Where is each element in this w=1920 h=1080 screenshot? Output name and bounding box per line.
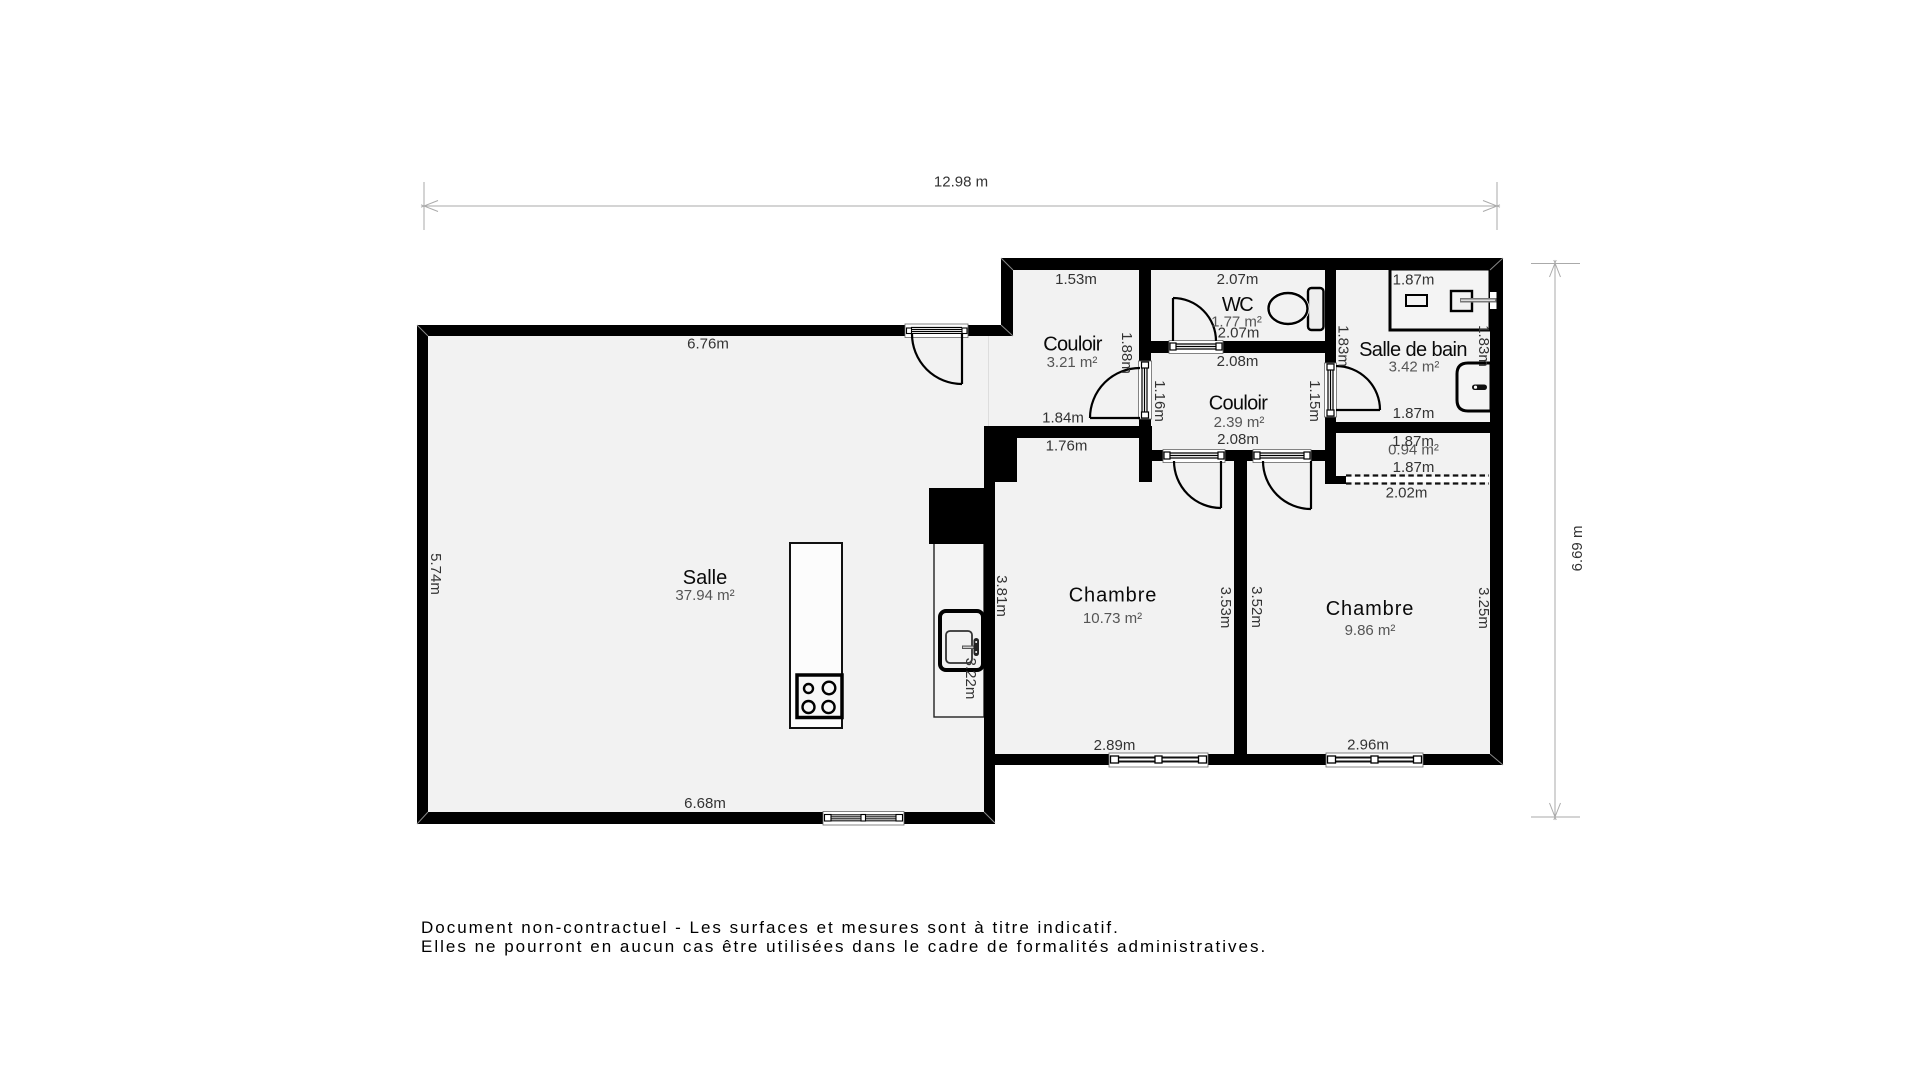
svg-text:3.25m: 3.25m — [1475, 587, 1492, 629]
svg-text:Chambre: Chambre — [1069, 585, 1158, 607]
svg-text:9.86 m²: 9.86 m² — [1345, 622, 1396, 639]
svg-text:3.53m: 3.53m — [1217, 587, 1234, 629]
svg-text:1.87m: 1.87m — [1392, 433, 1434, 450]
svg-text:2.02m: 2.02m — [1386, 485, 1428, 502]
svg-text:2.08m: 2.08m — [1217, 431, 1259, 448]
svg-text:Salle: Salle — [683, 567, 727, 589]
svg-text:2.39 m²: 2.39 m² — [1214, 414, 1265, 431]
svg-text:3.22m: 3.22m — [962, 658, 979, 700]
svg-text:2.07m: 2.07m — [1217, 271, 1259, 288]
svg-text:3.52m: 3.52m — [1248, 586, 1265, 628]
svg-text:1.76m: 1.76m — [1046, 438, 1088, 455]
svg-text:1.87m: 1.87m — [1393, 272, 1435, 289]
svg-text:Elles ne pourront en aucun cas: Elles ne pourront en aucun cas être util… — [421, 937, 1267, 956]
svg-text:6.69 m: 6.69 m — [1569, 526, 1586, 572]
svg-text:1.15m: 1.15m — [1306, 380, 1323, 422]
svg-text:1.84m: 1.84m — [1042, 410, 1084, 427]
svg-text:Chambre: Chambre — [1326, 598, 1415, 620]
svg-text:3.21 m²: 3.21 m² — [1047, 354, 1098, 371]
svg-text:2.96m: 2.96m — [1347, 737, 1389, 754]
svg-text:3.81m: 3.81m — [993, 575, 1010, 617]
svg-text:10.73 m²: 10.73 m² — [1083, 610, 1142, 627]
svg-text:1.83m: 1.83m — [1335, 325, 1352, 367]
svg-text:5.74m: 5.74m — [427, 553, 444, 595]
svg-text:6.68m: 6.68m — [684, 795, 726, 812]
svg-text:1.87m: 1.87m — [1393, 405, 1435, 422]
svg-text:12.98 m: 12.98 m — [934, 174, 988, 191]
svg-text:1.83m: 1.83m — [1475, 325, 1492, 367]
svg-text:1.53m: 1.53m — [1055, 271, 1097, 288]
svg-text:2.08m: 2.08m — [1217, 353, 1259, 370]
svg-text:1.16m: 1.16m — [1151, 380, 1168, 422]
svg-text:6.76m: 6.76m — [687, 336, 729, 353]
svg-text:Document non-contractuel - Les: Document non-contractuel - Les surfaces … — [421, 918, 1120, 937]
svg-text:1.87m: 1.87m — [1393, 459, 1435, 476]
svg-text:2.89m: 2.89m — [1094, 737, 1136, 754]
svg-text:37.94 m²: 37.94 m² — [675, 587, 734, 604]
svg-text:2.07m: 2.07m — [1218, 325, 1260, 342]
svg-text:Couloir: Couloir — [1209, 393, 1268, 415]
svg-text:1.88m: 1.88m — [1118, 332, 1135, 374]
svg-text:3.42 m²: 3.42 m² — [1389, 359, 1440, 376]
svg-text:Couloir: Couloir — [1043, 334, 1102, 356]
